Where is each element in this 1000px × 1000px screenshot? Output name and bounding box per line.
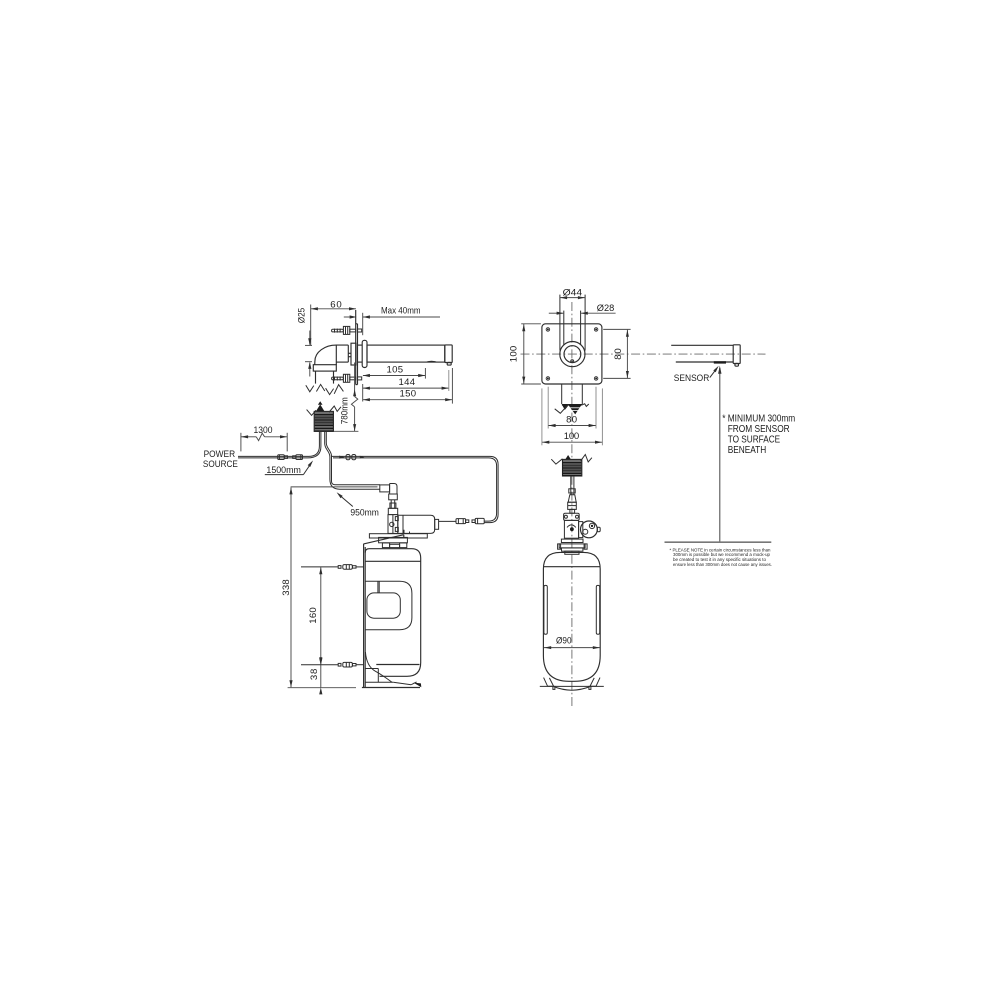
svg-text:150: 150 <box>400 389 417 400</box>
svg-text:TO SURFACE: TO SURFACE <box>728 434 781 445</box>
svg-text:BENEATH: BENEATH <box>728 445 767 456</box>
svg-text:950mm: 950mm <box>350 508 379 518</box>
svg-text:POWER: POWER <box>204 449 236 459</box>
svg-text:80: 80 <box>566 414 577 425</box>
svg-text:1500mm: 1500mm <box>266 465 301 475</box>
svg-text:Max 40mm: Max 40mm <box>381 305 421 316</box>
svg-text:Ø44: Ø44 <box>563 287 583 298</box>
svg-text:FROM SENSOR: FROM SENSOR <box>728 424 790 435</box>
svg-text:ensure less than 300mm does no: ensure less than 300mm does not cause an… <box>673 562 772 567</box>
svg-text:780mm: 780mm <box>340 397 351 424</box>
svg-text:60: 60 <box>330 299 342 310</box>
svg-text:100: 100 <box>508 346 519 363</box>
svg-text:160: 160 <box>308 607 319 624</box>
svg-text:338: 338 <box>281 579 292 596</box>
svg-text:Ø25: Ø25 <box>297 308 308 324</box>
svg-text:1300: 1300 <box>254 425 273 436</box>
svg-text:80: 80 <box>613 348 624 360</box>
svg-text:SOURCE: SOURCE <box>203 459 238 469</box>
svg-text:100: 100 <box>564 431 580 442</box>
svg-text:144: 144 <box>399 377 416 388</box>
svg-text:Ø28: Ø28 <box>597 303 615 314</box>
svg-text:105: 105 <box>387 365 404 376</box>
svg-text:SENSOR: SENSOR <box>674 373 710 383</box>
svg-text:Ø90: Ø90 <box>556 636 572 647</box>
svg-text:* MINIMUM 300mm: * MINIMUM 300mm <box>722 413 795 424</box>
svg-text:38: 38 <box>309 669 320 681</box>
